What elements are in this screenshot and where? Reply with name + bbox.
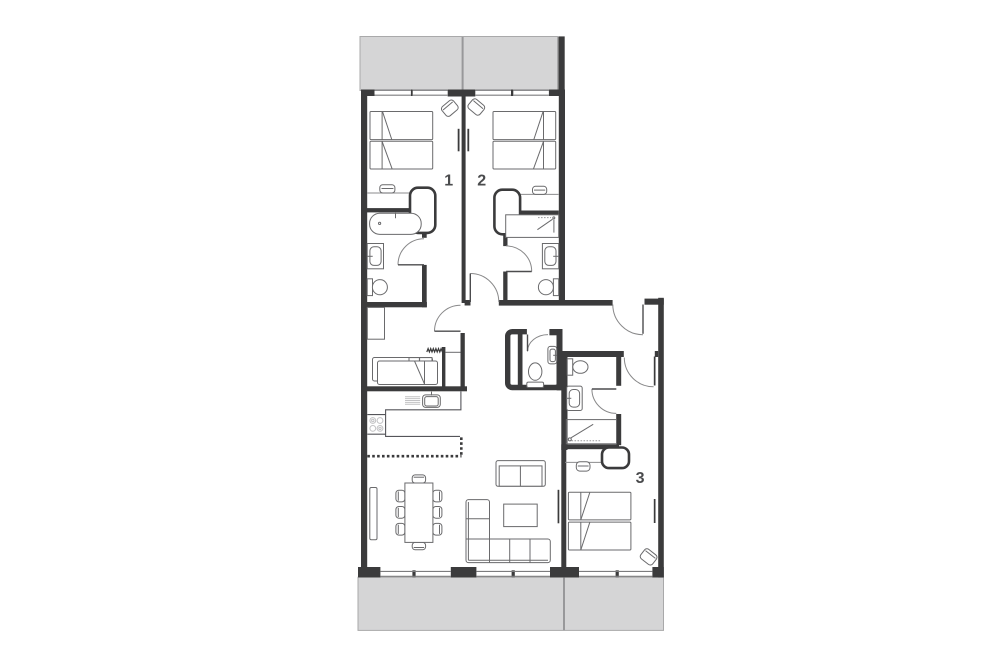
svg-text:3: 3 (636, 470, 645, 487)
svg-text:1: 1 (444, 172, 453, 189)
svg-text:2: 2 (477, 172, 486, 189)
